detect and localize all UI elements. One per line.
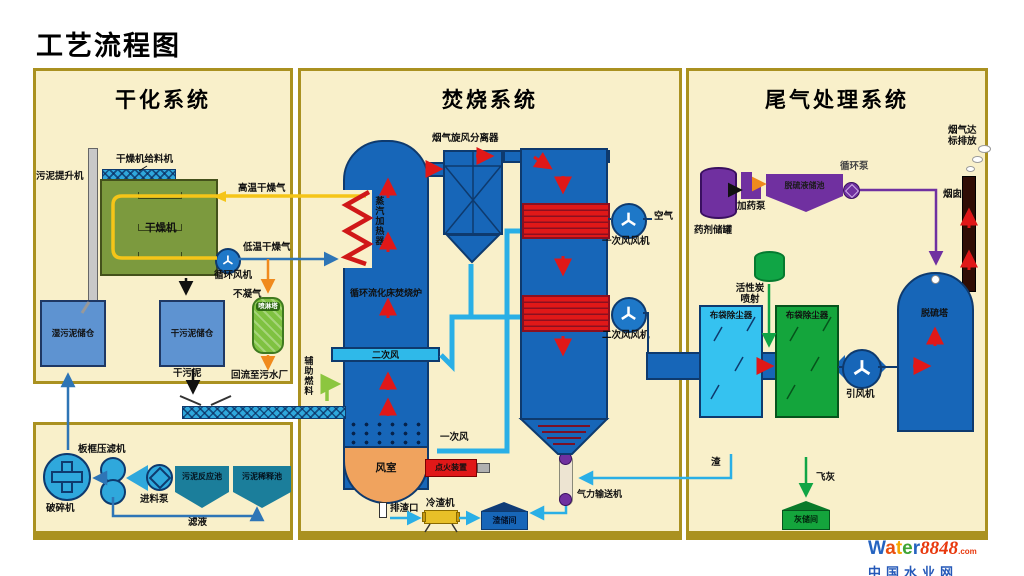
circulation-fan-label: 循环风机 xyxy=(214,271,252,282)
id-fan-label: 引风机 xyxy=(846,390,875,401)
dryer-feeder-label: 干燥机给料机 xyxy=(116,155,173,166)
dilution-tank-label: 污泥稀释池 xyxy=(233,472,291,481)
ash-room: 灰储间 xyxy=(782,510,830,530)
emission-line1: 烟气达 xyxy=(948,125,977,136)
primary-fan-label: 一次风风机 xyxy=(602,237,650,248)
emission-line2: 标排放 xyxy=(948,136,977,147)
fly-ash-label: 飞灰 xyxy=(816,473,835,484)
circulation-pump-label: 循环泵 xyxy=(840,162,869,173)
reaction-tank-label: 污泥反应池 xyxy=(175,472,229,481)
heat-bundle-2 xyxy=(522,295,610,332)
logo-letter: a xyxy=(885,538,896,559)
cyclone-label: 烟气旋风分离器 xyxy=(432,134,499,145)
section-title-tailgas: 尾气处理系统 xyxy=(686,84,988,114)
smoke-puff xyxy=(978,145,991,153)
carbon-injection-label: 活性炭 喷射 xyxy=(728,284,772,306)
circulation-pump-diamond xyxy=(844,183,858,197)
dry-sludge-label: 干污泥 xyxy=(173,369,202,380)
wet-sludge-silo-label: 湿污泥储仓 xyxy=(52,329,95,339)
flue-duct xyxy=(646,352,702,380)
cyclone-body xyxy=(443,150,503,235)
crusher-cross xyxy=(51,471,83,483)
chemical-tank xyxy=(700,167,737,219)
slag-cooler-label: 冷渣机 xyxy=(426,499,455,510)
igniter-label: 点火装置 xyxy=(435,463,467,472)
slag-label: 渣 xyxy=(711,458,721,469)
id-fan-icon xyxy=(842,349,882,389)
aux-fuel-label: 辅助燃料 xyxy=(303,356,313,406)
slag-cooler-cap xyxy=(422,512,426,522)
spray-nozzle xyxy=(931,275,940,284)
slide: 工艺流程图 干化系统 焚烧系统 尾气处理系统 污泥提升机 干燥机给料机 干燥机 … xyxy=(0,0,1024,576)
emission-label: 烟气达 标排放 xyxy=(948,126,977,148)
dryer-label: 干燥机 xyxy=(145,222,177,234)
steam-heater-label: 蒸汽加热器 xyxy=(374,196,384,262)
desulf-tower-label: 脱硫塔 xyxy=(921,308,948,318)
logo-cn: 中国水业网 xyxy=(868,562,1018,576)
bag-filter-2: 布袋除尘器 xyxy=(775,305,839,418)
desulf-tower xyxy=(897,272,974,432)
section-title-incineration: 焚烧系统 xyxy=(298,84,682,114)
wet-sludge-silo: 湿污泥储仓 xyxy=(40,300,106,367)
dryer-coil xyxy=(138,252,182,259)
air-label: 空气 xyxy=(654,212,673,223)
circulation-pump xyxy=(843,182,860,199)
logo-letter: W xyxy=(868,538,885,559)
heat-bundle-1 xyxy=(522,203,610,239)
pneumatic-wheel xyxy=(559,452,572,465)
slag-room-label: 渣储间 xyxy=(493,516,517,525)
furnace-bed-dots xyxy=(347,420,425,446)
spray-tower-label: 喷淋塔 xyxy=(256,302,280,311)
sludge-elevator-label: 污泥提升机 xyxy=(36,172,84,183)
slag-room-roof xyxy=(481,502,527,511)
bag-filter-1: 布袋除尘器 xyxy=(699,305,763,418)
heat-exchange-tower xyxy=(520,148,608,420)
secondary-air-band: 二次风 xyxy=(331,347,440,362)
crusher-label: 破碎机 xyxy=(46,504,75,515)
ash-room-label: 灰储间 xyxy=(794,515,818,524)
filter-press-roll xyxy=(100,479,126,505)
carbon-injection-line2: 喷射 xyxy=(740,294,759,305)
activated-carbon-tank xyxy=(754,251,785,282)
return-to-plant-label: 回流至污水厂 xyxy=(231,371,288,382)
smoke-puff xyxy=(966,166,975,172)
pneumatic-conveyor-label: 气力输送机 xyxy=(577,489,622,499)
carbon-injection-line1: 活性炭 xyxy=(736,283,765,294)
steam-heater-notch xyxy=(341,190,372,268)
slag-room: 渣储间 xyxy=(481,511,528,530)
site-logo: Water8848.com 中国水业网 xyxy=(868,540,1018,574)
logo-dotcom: .com xyxy=(958,547,977,556)
spray-tower: 喷淋塔 xyxy=(252,297,284,354)
press-outlet-cone xyxy=(126,465,148,491)
feed-pump-diamond xyxy=(148,466,171,489)
feed-pump xyxy=(146,464,173,491)
wind-box-label: 风室 xyxy=(345,462,427,474)
secondary-air-fan-icon xyxy=(611,297,647,333)
furnace-label: 循环流化床焚烧炉 xyxy=(344,288,428,298)
bag-filter-1-label: 布袋除尘器 xyxy=(701,311,761,321)
igniter-nub xyxy=(477,463,490,473)
logo-letter: e xyxy=(902,538,913,559)
hot-gas-label: 高温干燥气 xyxy=(238,184,286,195)
chemical-tank-label: 药剂储罐 xyxy=(694,226,732,237)
slag-port xyxy=(379,502,387,518)
filter-press-label: 板框压滤机 xyxy=(78,445,126,456)
chimney-label: 烟囱 xyxy=(943,190,962,201)
slag-cooler xyxy=(424,510,458,524)
ash-room-roof xyxy=(782,501,830,510)
igniter: 点火装置 xyxy=(425,459,477,477)
filtrate-label: 滤液 xyxy=(188,518,207,529)
chimney xyxy=(962,176,976,292)
dry-sludge-silo-label: 干污泥储仓 xyxy=(171,329,214,339)
feed-pump-label: 进料泵 xyxy=(140,495,169,506)
pneumatic-wheel xyxy=(559,493,572,506)
dry-sludge-silo: 干污泥储仓 xyxy=(159,300,225,367)
sludge-elevator xyxy=(88,148,98,304)
conveyor-funnel xyxy=(180,396,231,405)
slag-port-label: 排渣口 xyxy=(390,504,419,515)
dry-sludge-conveyor xyxy=(182,406,346,419)
slag-cooler-cap xyxy=(456,512,460,522)
primary-air-fan-icon xyxy=(611,203,647,239)
secondary-air-label: 二次风 xyxy=(333,350,438,360)
desulf-liquid-tank-label: 脱硫液储池 xyxy=(766,181,843,190)
primary-air-label: 一次风 xyxy=(440,433,469,444)
low-gas-label: 低温干燥气 xyxy=(243,243,291,254)
logo-number: 8848 xyxy=(920,538,958,559)
secondary-fan-label: 二次风风机 xyxy=(602,331,650,342)
crusher xyxy=(43,453,91,501)
dosing-pump-label: 加药泵 xyxy=(737,202,766,213)
bag-filter-2-label: 布袋除尘器 xyxy=(777,311,837,321)
page-title: 工艺流程图 xyxy=(36,24,181,63)
logo-letter: r xyxy=(913,538,920,559)
dryer-coil xyxy=(138,192,182,199)
smoke-puff xyxy=(972,156,983,163)
section-title-drying: 干化系统 xyxy=(33,84,293,114)
